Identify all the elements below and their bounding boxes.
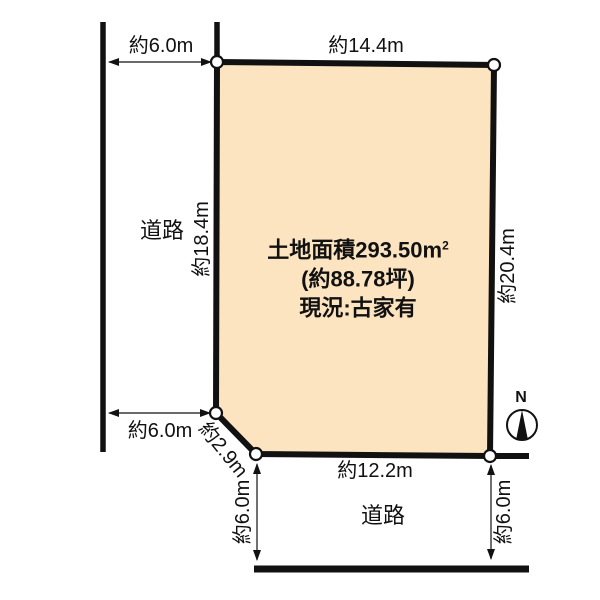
- compass-north-label: N: [515, 390, 527, 406]
- south-road-label: 道路: [361, 505, 405, 527]
- dim-label-west-road-width-top: 約6.0m: [129, 36, 193, 56]
- land-plot-diagram: 約6.0m 約14.4m 約18.4m 約20.4m 約6.0m 約2.9m 約…: [0, 0, 600, 600]
- west-road-label: 道路: [140, 220, 184, 242]
- dim-label-south-road-width-right: 約6.0m: [494, 480, 514, 544]
- parcel-tsubo-line: (約88.78坪): [267, 265, 449, 294]
- parcel-area-text: 土地面積293.50m: [267, 238, 442, 263]
- vertex-marker-southeast: [484, 450, 496, 462]
- vertex-marker-northeast: [488, 59, 500, 71]
- parcel-info-block: 土地面積293.50m2 (約88.78坪) 現況:古家有: [267, 231, 449, 322]
- dim-label-south-road-width-left: 約6.0m: [233, 480, 253, 544]
- vertex-marker-southwest-lower: [250, 448, 262, 460]
- parcel-area-line: 土地面積293.50m2: [267, 231, 449, 264]
- parcel-area-superscript: 2: [442, 238, 449, 252]
- vertex-marker-northwest: [211, 56, 223, 68]
- vertex-marker-southwest-upper: [210, 407, 222, 419]
- dim-label-south-edge: 約12.2m: [337, 461, 413, 481]
- parcel-status-line: 現況:古家有: [267, 294, 449, 323]
- dim-label-north-edge: 約14.4m: [328, 36, 404, 56]
- dim-label-west-road-width-bottom: 約6.0m: [128, 421, 192, 441]
- dim-label-west-edge: 約18.4m: [192, 201, 212, 277]
- compass-icon: [507, 410, 537, 440]
- dim-label-east-edge: 約20.4m: [498, 228, 518, 304]
